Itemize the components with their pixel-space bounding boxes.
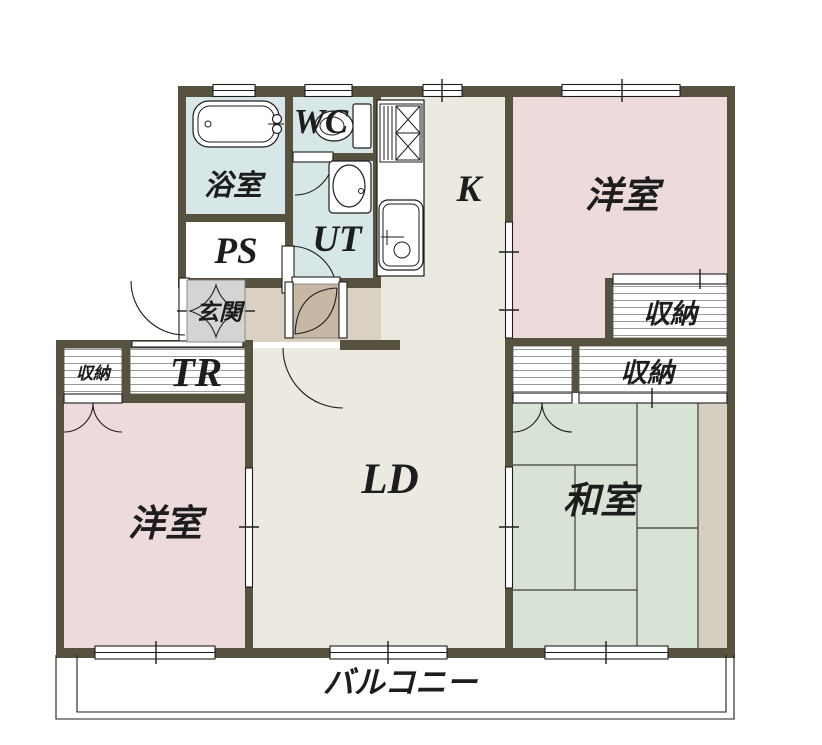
kitchen-counter	[377, 100, 424, 276]
storage-right-lower-label: 収納	[620, 358, 677, 388]
storage-left-label: 収納	[76, 364, 112, 383]
sink-icon	[379, 200, 423, 270]
floor-plan: 浴室 PS WC UT K 洋室 収納 収納 玄関 収納 TR LD 洋室 和室…	[0, 0, 822, 745]
japanese-room-floor	[513, 403, 698, 648]
japanese-room-side-strip	[698, 403, 727, 648]
entrance-label: 玄関	[196, 300, 246, 325]
window-top-wc	[305, 85, 352, 97]
trunk-room-label: TR	[170, 349, 222, 395]
bath-label: 浴室	[204, 169, 267, 202]
storage-right-upper-label: 収納	[643, 299, 700, 329]
ut-label: UT	[312, 219, 363, 260]
bathtub-icon	[193, 101, 284, 147]
closet-box	[513, 346, 572, 393]
wc-label: WC	[294, 102, 349, 141]
window-top-bath	[213, 85, 255, 97]
floor-plan-drawing: 浴室 PS WC UT K 洋室 収納 収納 玄関 収納 TR LD 洋室 和室…	[0, 0, 822, 745]
bedroom-left-label: 洋室	[128, 503, 208, 545]
ut-entry-door	[285, 277, 347, 338]
washbasin-icon	[329, 161, 371, 213]
bedroom-right-label: 洋室	[585, 175, 665, 217]
balcony-label: バルコニー	[323, 665, 478, 700]
japanese-room-label: 和室	[563, 480, 643, 522]
ps-label: PS	[213, 231, 257, 272]
kitchen-label: K	[456, 169, 484, 210]
living-dining-label: LD	[360, 456, 418, 503]
